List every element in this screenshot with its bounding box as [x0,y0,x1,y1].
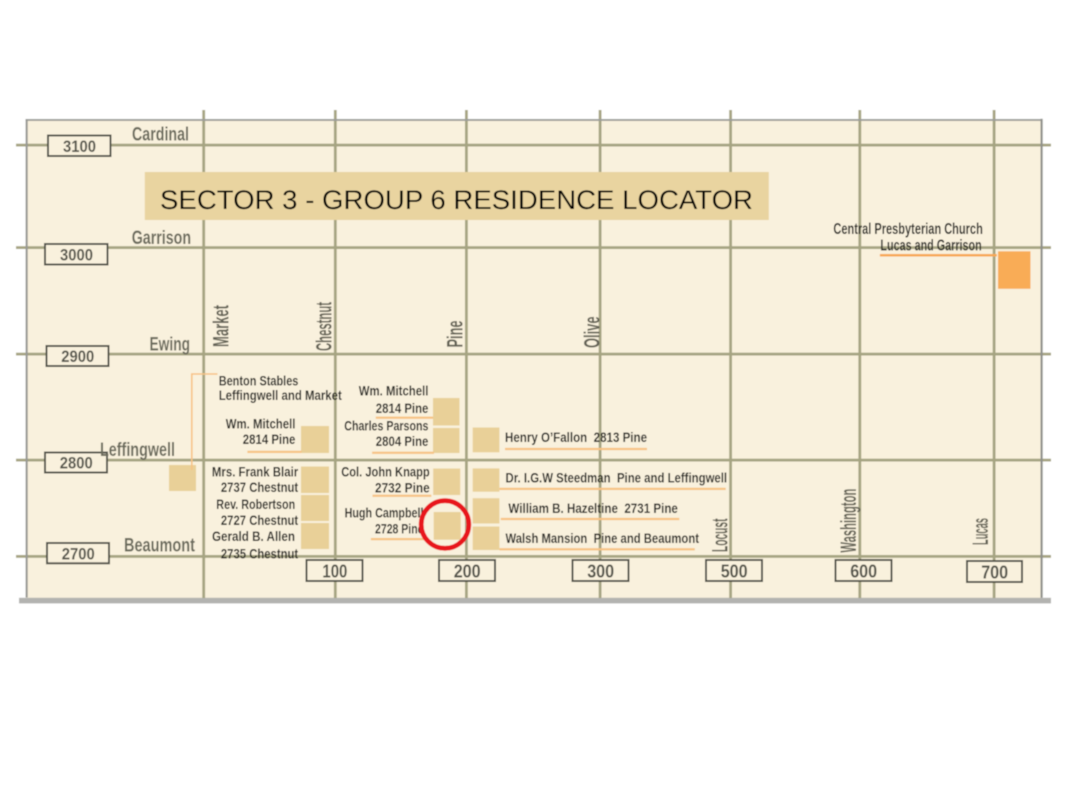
svg-text:2804 Pine: 2804 Pine [376,433,429,449]
svg-text:2735 Chestnut: 2735 Chestnut [221,545,299,561]
svg-text:Chestnut: Chestnut [312,302,337,351]
svg-text:2737 Chestnut: 2737 Chestnut [221,479,299,495]
svg-text:Mrs. Frank Blair: Mrs. Frank Blair [212,463,299,479]
svg-text:Lucas: Lucas [968,518,993,545]
svg-text:3000: 3000 [60,245,93,264]
svg-text:Garrison: Garrison [132,228,191,249]
svg-text:700: 700 [981,562,1008,582]
svg-text:Charles Parsons: Charles Parsons [344,418,428,434]
svg-text:3100: 3100 [63,137,96,156]
svg-text:Wm. Mitchell: Wm. Mitchell [226,416,296,432]
svg-text:Market: Market [209,305,234,347]
svg-text:300: 300 [587,561,614,581]
svg-text:Col. John Knapp: Col. John Knapp [341,463,430,479]
svg-text:Ewing: Ewing [150,335,191,356]
svg-text:Henry O’Fallon 2813 Pine: Henry O’Fallon 2813 Pine [505,429,647,445]
svg-text:2700: 2700 [62,544,95,563]
svg-text:Beaumont: Beaumont [124,535,196,556]
svg-text:Cardinal: Cardinal [132,125,189,146]
svg-text:Wm. Mitchell: Wm. Mitchell [359,383,429,399]
svg-text:100: 100 [322,561,347,581]
svg-text:Walsh Mansion Pine and Beaumo: Walsh Mansion Pine and Beaumont [506,530,700,546]
svg-text:2800: 2800 [60,454,93,473]
svg-text:Gerald B. Allen: Gerald B. Allen [212,528,295,544]
svg-text:Hugh Campbell: Hugh Campbell [345,504,424,520]
svg-text:Leffingwell: Leffingwell [100,440,175,461]
svg-text:2814 Pine: 2814 Pine [376,400,429,416]
svg-text:Leffingwell and Market: Leffingwell and Market [219,387,342,403]
svg-text:Olive: Olive [580,317,605,349]
svg-text:Central Presbyterian Church: Central Presbyterian Church [833,221,982,238]
svg-text:Lucas and Garrison: Lucas and Garrison [880,238,981,255]
svg-text:Dr. I.G.W Steedman Pine and L: Dr. I.G.W Steedman Pine and Leffingwell [506,469,728,485]
svg-text:Washington: Washington [836,489,861,553]
svg-text:2728 Pine: 2728 Pine [375,521,424,537]
svg-text:Locust: Locust [708,518,733,552]
svg-text:2814 Pine: 2814 Pine [243,431,296,447]
svg-text:200: 200 [454,561,481,581]
svg-text:SECTOR 3 - GROUP 6 RESIDENCE L: SECTOR 3 - GROUP 6 RESIDENCE LOCATOR [160,185,753,215]
svg-text:600: 600 [850,561,877,581]
svg-text:2900: 2900 [61,347,94,366]
svg-text:2732 Pine: 2732 Pine [375,480,430,496]
svg-text:2727 Chestnut: 2727 Chestnut [221,512,299,528]
svg-text:William B. Hazeltine 2731 Pin: William B. Hazeltine 2731 Pine [508,500,678,516]
svg-text:500: 500 [721,561,748,581]
svg-text:Pine: Pine [443,321,468,348]
svg-text:Rev. Robertson: Rev. Robertson [216,496,295,512]
